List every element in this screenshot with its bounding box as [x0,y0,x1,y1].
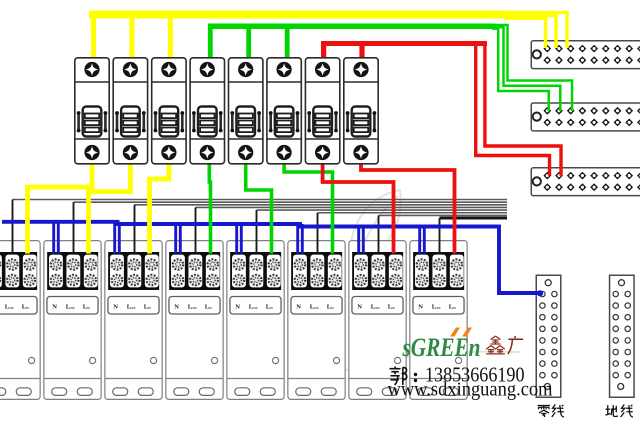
svg-text:sGREEn: sGREEn [402,333,481,362]
svg-text:www.sdxinguang.com: www.sdxinguang.com [388,379,553,401]
